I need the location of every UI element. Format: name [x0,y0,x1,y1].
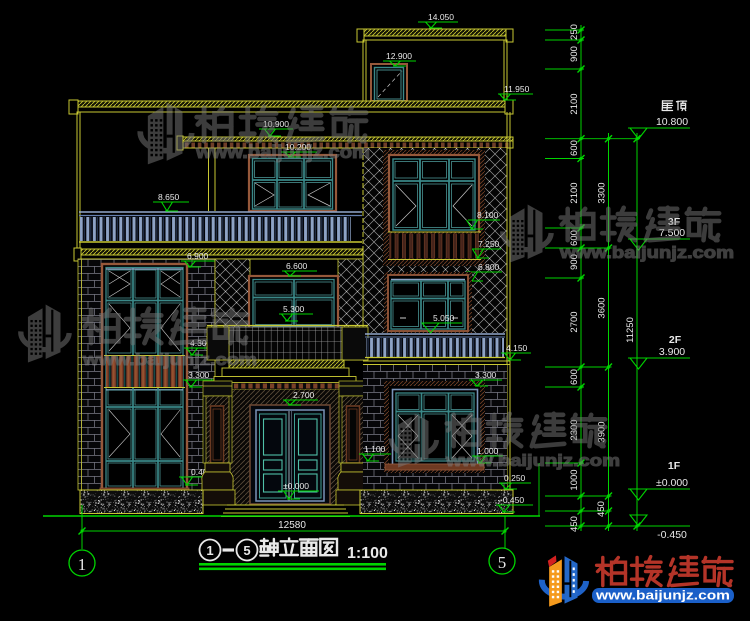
svg-text:10.800: 10.800 [656,116,688,128]
svg-text:1.100: 1.100 [364,444,386,454]
svg-text:12.900: 12.900 [386,51,412,61]
svg-text:±0.000: ±0.000 [656,477,688,489]
svg-text:5: 5 [498,553,507,572]
svg-text:8.650: 8.650 [158,192,180,202]
svg-text:-0.450: -0.450 [657,529,687,541]
svg-text:-0.450: -0.450 [500,495,524,505]
svg-text:2.700: 2.700 [293,390,315,400]
svg-text:2700: 2700 [569,311,580,332]
svg-text:2100: 2100 [569,93,580,114]
svg-text:1F: 1F [668,460,681,472]
svg-text:2F: 2F [669,334,682,346]
svg-text:6.800: 6.800 [478,262,500,272]
svg-text:3.900: 3.900 [659,346,685,358]
svg-text:1:100: 1:100 [347,545,388,562]
svg-text:11.950: 11.950 [504,84,530,94]
svg-text:3.300: 3.300 [475,370,497,380]
svg-text:600: 600 [569,140,580,156]
svg-text:14.050: 14.050 [428,12,454,22]
svg-text:1000: 1000 [569,469,580,490]
svg-text:900: 900 [569,46,580,62]
svg-text:3300: 3300 [597,182,608,203]
svg-text:8.100: 8.100 [477,210,499,220]
svg-text:12580: 12580 [278,520,306,531]
svg-text:1: 1 [206,543,213,558]
svg-text:6.900: 6.900 [187,251,209,261]
svg-text:5.300: 5.300 [283,304,305,314]
svg-text:www.baijunjz.com: www.baijunjz.com [559,243,734,262]
svg-text:250: 250 [569,24,580,40]
svg-text:4.150: 4.150 [506,343,528,353]
svg-text:1: 1 [78,555,87,574]
svg-text:www.baijunjz.com: www.baijunjz.com [82,350,257,369]
svg-text:6.600: 6.600 [286,261,308,271]
svg-text:2100: 2100 [569,182,580,203]
svg-text:www.baijunjz.com: www.baijunjz.com [595,589,730,603]
svg-text:11250: 11250 [625,317,636,343]
svg-text:www.baijunjz.com: www.baijunjz.com [445,451,620,470]
svg-text:5.050: 5.050 [433,313,455,323]
svg-text:5: 5 [243,543,250,558]
svg-text:±0.000: ±0.000 [283,481,309,491]
svg-text:450: 450 [569,516,580,532]
svg-text:www.baijunjz.com: www.baijunjz.com [195,142,370,162]
svg-text:600: 600 [569,369,580,385]
svg-text:0.250: 0.250 [504,473,526,483]
svg-text:7.250: 7.250 [478,239,500,249]
svg-text:3.300: 3.300 [188,370,210,380]
svg-text:3600: 3600 [597,297,608,318]
svg-text:450: 450 [596,501,607,517]
